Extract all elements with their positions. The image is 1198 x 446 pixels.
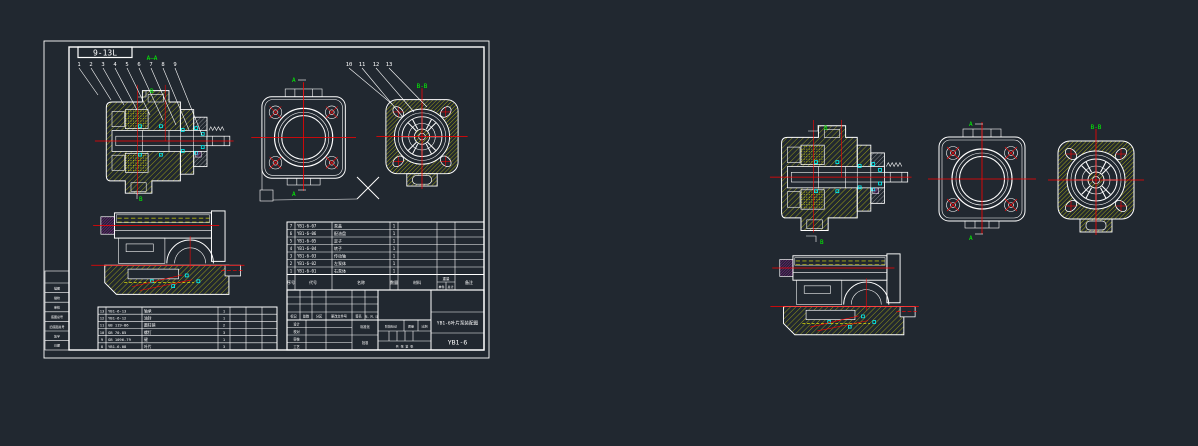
balloon-number: 6 bbox=[137, 62, 140, 68]
balloon-number: 9 bbox=[173, 62, 176, 68]
bom-cell: YB1-6-01 bbox=[297, 269, 317, 274]
bom-header: 总计 bbox=[447, 284, 453, 289]
tb-label: 标记 bbox=[290, 314, 297, 319]
bom-cell: GB 119-86 bbox=[108, 323, 129, 328]
balloon-number: 13 bbox=[386, 62, 393, 68]
bom-cell: 8 bbox=[101, 344, 104, 349]
balloon-number: 10 bbox=[346, 62, 353, 68]
page-label: 9-13L bbox=[93, 49, 117, 58]
bom-cell: 1 bbox=[223, 337, 226, 342]
tb-label: 校对 bbox=[293, 329, 300, 334]
bom-cell: YB1-6-06 bbox=[297, 231, 317, 236]
view-section-bb-right bbox=[1048, 129, 1144, 235]
margin-label: 日期 bbox=[54, 343, 60, 348]
bom-cell: YB1-6-13 bbox=[108, 308, 126, 313]
bom-cell: 1 bbox=[393, 231, 396, 236]
bom-rows: 7YB1-6-07泵盖1 6YB1-6-06配油盘1 5YB1-6-05定子1 … bbox=[290, 223, 396, 274]
margin-label: 审核 bbox=[54, 305, 60, 310]
cut-label-a-top: A bbox=[292, 77, 296, 84]
balloon-number: 2 bbox=[89, 62, 92, 68]
cut-label-b-bottom: B bbox=[820, 239, 824, 246]
cut-label-a-top: A bbox=[969, 121, 973, 128]
balloon-number: 1 bbox=[77, 62, 80, 68]
bom-cell: 右泵体 bbox=[334, 268, 346, 274]
balloon-number: 7 bbox=[149, 62, 152, 68]
bom-cell: 3 bbox=[290, 254, 293, 259]
bom-cell: YB1-6-02 bbox=[297, 261, 317, 266]
drawing-name: YB1-6叶片泵装配图 bbox=[437, 320, 479, 327]
bom-cell: 1 bbox=[393, 239, 396, 244]
right-view-group: B B A A B-B bbox=[770, 120, 1144, 335]
cut-label-b-top: B bbox=[150, 88, 154, 95]
bom-cell: GB 70-85 bbox=[108, 330, 126, 335]
bom-cell: YB1-6-12 bbox=[108, 316, 126, 321]
balloon-number: 3 bbox=[101, 62, 104, 68]
section-title-bb: B-B bbox=[1091, 124, 1102, 131]
view-section-bb bbox=[376, 88, 467, 189]
bom-cell: 圆柱销 bbox=[144, 323, 156, 328]
bom-cell: 4 bbox=[290, 246, 293, 251]
section-title-aa: A—A bbox=[147, 55, 158, 62]
cut-label-a-bottom: A bbox=[292, 191, 296, 198]
bom-header: 数量 bbox=[390, 279, 398, 285]
bom-cell: 11 bbox=[100, 323, 105, 328]
bom-cell: 1 bbox=[393, 246, 396, 251]
bom-cell: 9 bbox=[101, 337, 104, 342]
bom-cell: YB1-6-05 bbox=[297, 239, 317, 244]
bom-cell: 10 bbox=[100, 330, 105, 335]
bom-cell: 螺钉 bbox=[144, 330, 152, 335]
view-section-right bbox=[770, 120, 912, 233]
tb-label: 批准 bbox=[362, 340, 369, 345]
balloon-number: 8 bbox=[161, 62, 164, 68]
bom-cell: YB1-6-07 bbox=[297, 224, 317, 229]
view-section-aa bbox=[95, 85, 234, 195]
bom-cell: 1 bbox=[290, 269, 293, 274]
bom-cell: 1 bbox=[393, 269, 396, 274]
bom-header: 序号 bbox=[287, 279, 295, 285]
bom-table: 7YB1-6-07泵盖1 6YB1-6-06配油盘1 5YB1-6-05定子1 … bbox=[287, 222, 484, 290]
tb-label: 质量 bbox=[408, 324, 414, 329]
tb-label: 年、月、日 bbox=[365, 315, 378, 319]
bom-header: 备注 bbox=[465, 279, 473, 285]
tb-label: 设计 bbox=[293, 322, 300, 327]
tb-label: 分区 bbox=[316, 314, 323, 319]
page-label-box: 9-13L bbox=[78, 47, 132, 58]
margin-label: 底图总号 bbox=[51, 314, 63, 319]
bom-cell: YB1-6-08 bbox=[108, 344, 127, 349]
bom-cell: 传动轴 bbox=[334, 253, 346, 259]
cut-label-b-top: B bbox=[824, 125, 828, 132]
bom-cell: 键 bbox=[144, 337, 148, 342]
tb-label: 审核 bbox=[293, 337, 300, 342]
tb-label: 签名 bbox=[355, 314, 361, 319]
margin-label: 签字 bbox=[54, 333, 60, 338]
bom-cell: YB1-6-04 bbox=[297, 246, 317, 251]
bom-header: 材料 bbox=[413, 279, 421, 285]
bom-cell: 3 bbox=[223, 344, 225, 349]
bom-cell: 油封 bbox=[144, 316, 152, 321]
bom-cell: 13 bbox=[100, 308, 105, 313]
drawing-sheet: 9-13L 描图 描校 审核 底图总号 旧底图总号 签字 日期 bbox=[44, 41, 489, 358]
bom-cell: 1 bbox=[393, 254, 396, 259]
title-block: 标记 处数 分区 更改文件号 签名 年、月、日 设计 校对 审核 工艺 标准化 … bbox=[287, 290, 484, 350]
tb-label: 标准化 bbox=[360, 324, 370, 329]
view-front-right bbox=[928, 122, 1036, 234]
roughness-annotation bbox=[260, 170, 379, 201]
tb-label: 比例 bbox=[421, 324, 427, 329]
tb-label: 处数 bbox=[303, 314, 310, 319]
bom-cell: GB 1096-79 bbox=[108, 337, 132, 342]
bom-cell: 1 bbox=[393, 224, 396, 229]
view-side-section bbox=[91, 211, 244, 294]
bom-cell: 转子 bbox=[334, 245, 342, 251]
margin-label: 描校 bbox=[54, 295, 60, 300]
bom-cell: 1 bbox=[393, 261, 396, 266]
tb-label: 阶段标记 bbox=[385, 324, 397, 329]
balloon-number: 12 bbox=[373, 62, 380, 68]
bom-cell: 3 bbox=[223, 330, 225, 335]
bom-cell: 1 bbox=[223, 308, 226, 313]
bom-cell: 配油盘 bbox=[334, 230, 346, 236]
bom-cell: 泵盖 bbox=[334, 223, 342, 229]
bom-cell: 5 bbox=[290, 239, 293, 244]
balloon-number: 11 bbox=[359, 62, 366, 68]
bom-cell: 定子 bbox=[334, 238, 342, 244]
margin-strip: 描图 描校 审核 底图总号 旧底图总号 签字 日期 bbox=[45, 271, 69, 350]
cut-label-a-bottom: A bbox=[969, 235, 973, 242]
bom-cell: 左泵体 bbox=[334, 260, 346, 266]
bom-cell: 轴承 bbox=[144, 308, 152, 313]
tb-label: 更改文件号 bbox=[331, 314, 347, 319]
tb-label: 共 张 第 张 bbox=[396, 344, 413, 349]
bom-header: 名称 bbox=[357, 279, 365, 285]
bom-cell: 1 bbox=[223, 316, 226, 321]
balloon-number: 4 bbox=[113, 62, 117, 68]
drawing-number: YB1-6 bbox=[448, 339, 468, 347]
bom-cell: 6 bbox=[290, 231, 293, 236]
std-parts-table: 13YB1-6-13轴承1 12YB1-6-12油封1 11GB 119-86圆… bbox=[98, 307, 277, 350]
bom-header: 代号 bbox=[309, 279, 317, 285]
cut-label-b-bottom: B bbox=[139, 196, 143, 203]
bom-header: 重量 bbox=[443, 276, 451, 281]
bom-header: 单件 bbox=[438, 284, 444, 289]
margin-label: 描图 bbox=[54, 286, 60, 291]
bom-cell: 2 bbox=[290, 261, 293, 266]
tb-label: 工艺 bbox=[293, 344, 299, 349]
bom-cell: 7 bbox=[290, 224, 293, 229]
section-title-bb: B-B bbox=[417, 83, 428, 90]
cad-canvas: 9-13L 描图 描校 审核 底图总号 旧底图总号 签字 日期 bbox=[0, 0, 1198, 446]
balloon-number: 5 bbox=[125, 62, 128, 68]
view-front bbox=[251, 82, 356, 191]
margin-label: 旧底图总号 bbox=[49, 324, 64, 329]
bom-cell: 12 bbox=[100, 316, 105, 321]
bom-cell: YB1-6-03 bbox=[297, 254, 317, 259]
bom-cell: 叶片 bbox=[144, 344, 152, 349]
bom-cell: 2 bbox=[223, 323, 225, 328]
view-side-section-right bbox=[770, 254, 919, 335]
bom-headers: 序号 代号 名称 数量 材料 重量 单件 总计 备注 bbox=[287, 276, 473, 289]
